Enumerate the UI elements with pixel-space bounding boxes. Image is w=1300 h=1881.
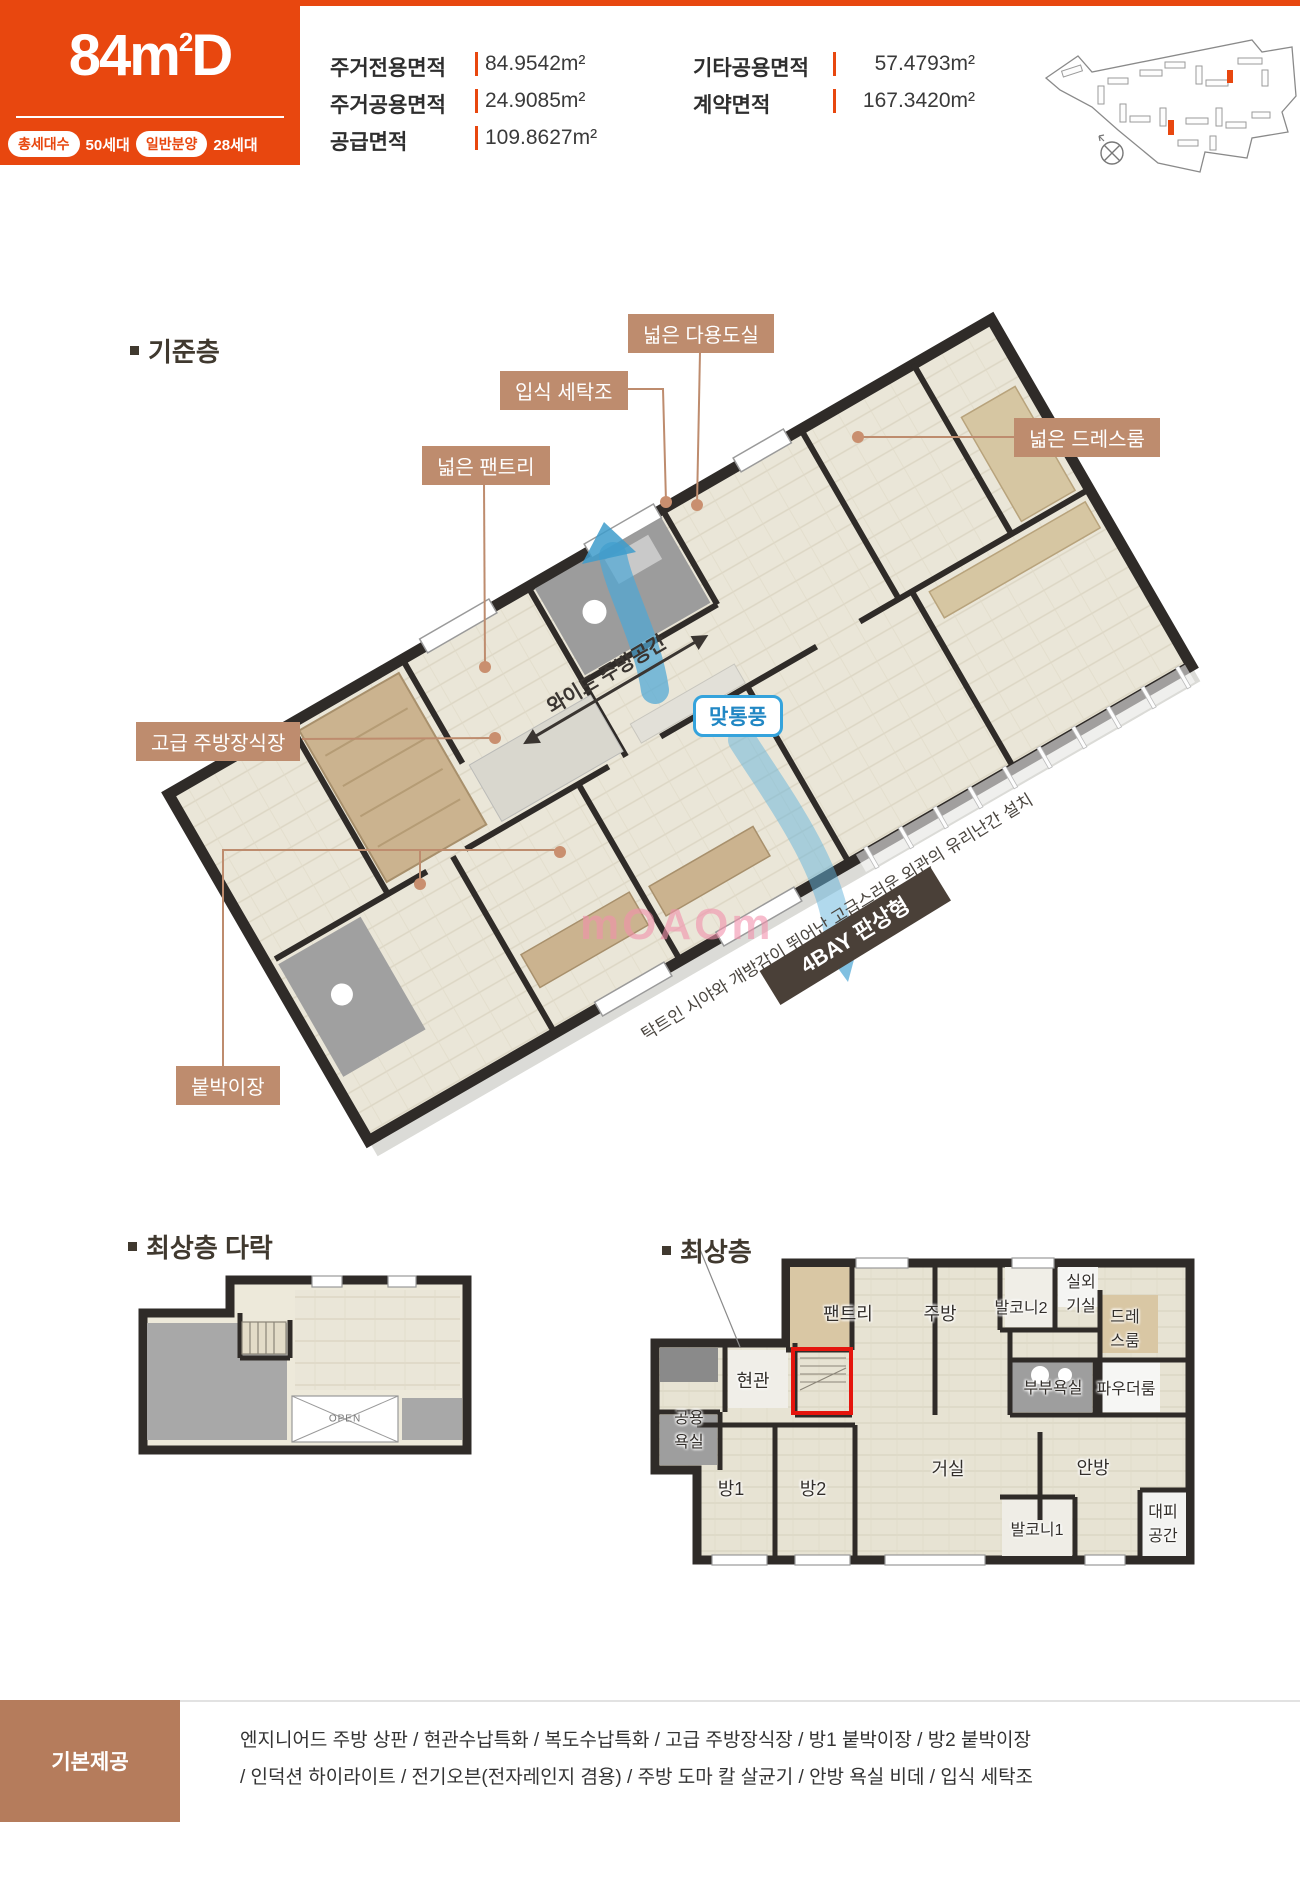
compass-icon — [1099, 135, 1123, 164]
divider — [475, 126, 478, 150]
footer-divider — [180, 1700, 1300, 1702]
unit-type-title: 84m2D — [0, 22, 300, 89]
section-header-top-floor: 최상층 — [662, 1232, 752, 1269]
area-value-contract: 167.3420m² — [845, 89, 975, 113]
room-label-shelter: 대피 공간 — [1148, 1498, 1177, 1546]
area-value-other-common: 57.4793m² — [845, 52, 975, 76]
area-value-exclusive: 84.9542m² — [485, 52, 585, 76]
section-header-attic: 최상층 다락 — [128, 1228, 273, 1265]
room-label-powder-room: 파우더룸 — [1097, 1375, 1156, 1399]
room-label-kitchen: 주방 — [923, 1300, 956, 1326]
provision-list: 엔지니어드 주방 상판 / 현관수납특화 / 복도수납특화 / 고급 주방장식장… — [240, 1722, 1240, 1796]
attic-plan — [143, 1276, 467, 1450]
divider — [833, 89, 836, 113]
cross-ventilation-badge: 맞통풍 — [693, 695, 783, 737]
callout-utility-room: 넓은 다용도실 — [628, 314, 774, 353]
area-label-common: 주거공용면적 — [330, 89, 446, 119]
callout-pantry: 넓은 팬트리 — [422, 446, 550, 485]
provision-line1: 엔지니어드 주방 상판 / 현관수납특화 / 복도수납특화 / 고급 주방장식장… — [240, 1722, 1240, 1759]
room-label-pantry: 팬트리 — [823, 1300, 873, 1326]
room-label-balcony1: 발코니1 — [1010, 1516, 1063, 1540]
brochure-page: 84m2D 총세대수 50세대 일반분양 28세대 주거전용면적 84.9542… — [0, 0, 1300, 1881]
divider — [833, 52, 836, 76]
callout-dressroom: 넓은 드레스룸 — [1014, 418, 1160, 457]
households-badge: 총세대수 — [8, 131, 80, 157]
area-label-other-common: 기타공용면적 — [693, 52, 809, 82]
room-label-entrance: 현관 — [736, 1367, 769, 1393]
provision-title: 기본제공 — [51, 1746, 128, 1776]
area-label-exclusive: 주거전용면적 — [330, 52, 446, 82]
square-bullet-icon — [662, 1246, 671, 1255]
room-label-room1: 방1 — [718, 1475, 745, 1501]
area-value-common: 24.9085m² — [485, 89, 585, 113]
general-sale-value: 28세대 — [213, 134, 257, 155]
callout-kitchen-cabinet: 고급 주방장식장 — [136, 722, 300, 761]
area-value-supply: 109.8627m² — [485, 126, 595, 150]
room-label-master-bedroom: 안방 — [1076, 1454, 1109, 1480]
top-floor-plan — [655, 1242, 1190, 1565]
divider — [475, 89, 478, 113]
divider — [475, 52, 478, 76]
room-label-living: 거실 — [931, 1455, 964, 1481]
square-bullet-icon — [128, 1242, 137, 1251]
room-label-dressroom: 드레 스룸 — [1110, 1303, 1139, 1351]
section-header-base-floor: 기준층 — [130, 332, 220, 369]
hero-badges: 총세대수 50세대 일반분양 28세대 — [8, 131, 298, 157]
room-label-master-bath: 부부욕실 — [1024, 1374, 1083, 1398]
room-label-balcony2: 발코니2 — [994, 1294, 1047, 1318]
area-label-supply: 공급면적 — [330, 126, 407, 156]
area-label-contract: 계약면적 — [693, 89, 770, 119]
room-label-ac-room: 실외 기실 — [1066, 1268, 1095, 1316]
hero-divider — [16, 116, 284, 118]
households-value: 50세대 — [86, 134, 130, 155]
room-label-shared-bath: 공용 욕실 — [674, 1404, 703, 1452]
square-bullet-icon — [130, 346, 139, 355]
callout-washer: 입식 세탁조 — [500, 371, 628, 410]
room-label-room2: 방2 — [800, 1475, 827, 1501]
callout-built-in-closet: 붙박이장 — [176, 1066, 280, 1105]
general-sale-badge: 일반분양 — [136, 131, 208, 157]
site-map — [1046, 40, 1296, 172]
provision-line2: / 인덕션 하이라이트 / 전기오븐(전자레인지 겸용) / 주방 도마 칼 살… — [240, 1759, 1240, 1796]
provision-box: 기본제공 — [0, 1700, 180, 1822]
watermark: mOAOm — [580, 900, 773, 950]
attic-open-label: OPEN — [329, 1414, 361, 1425]
unit-type-card: 84m2D 총세대수 50세대 일반분양 28세대 — [0, 0, 300, 165]
